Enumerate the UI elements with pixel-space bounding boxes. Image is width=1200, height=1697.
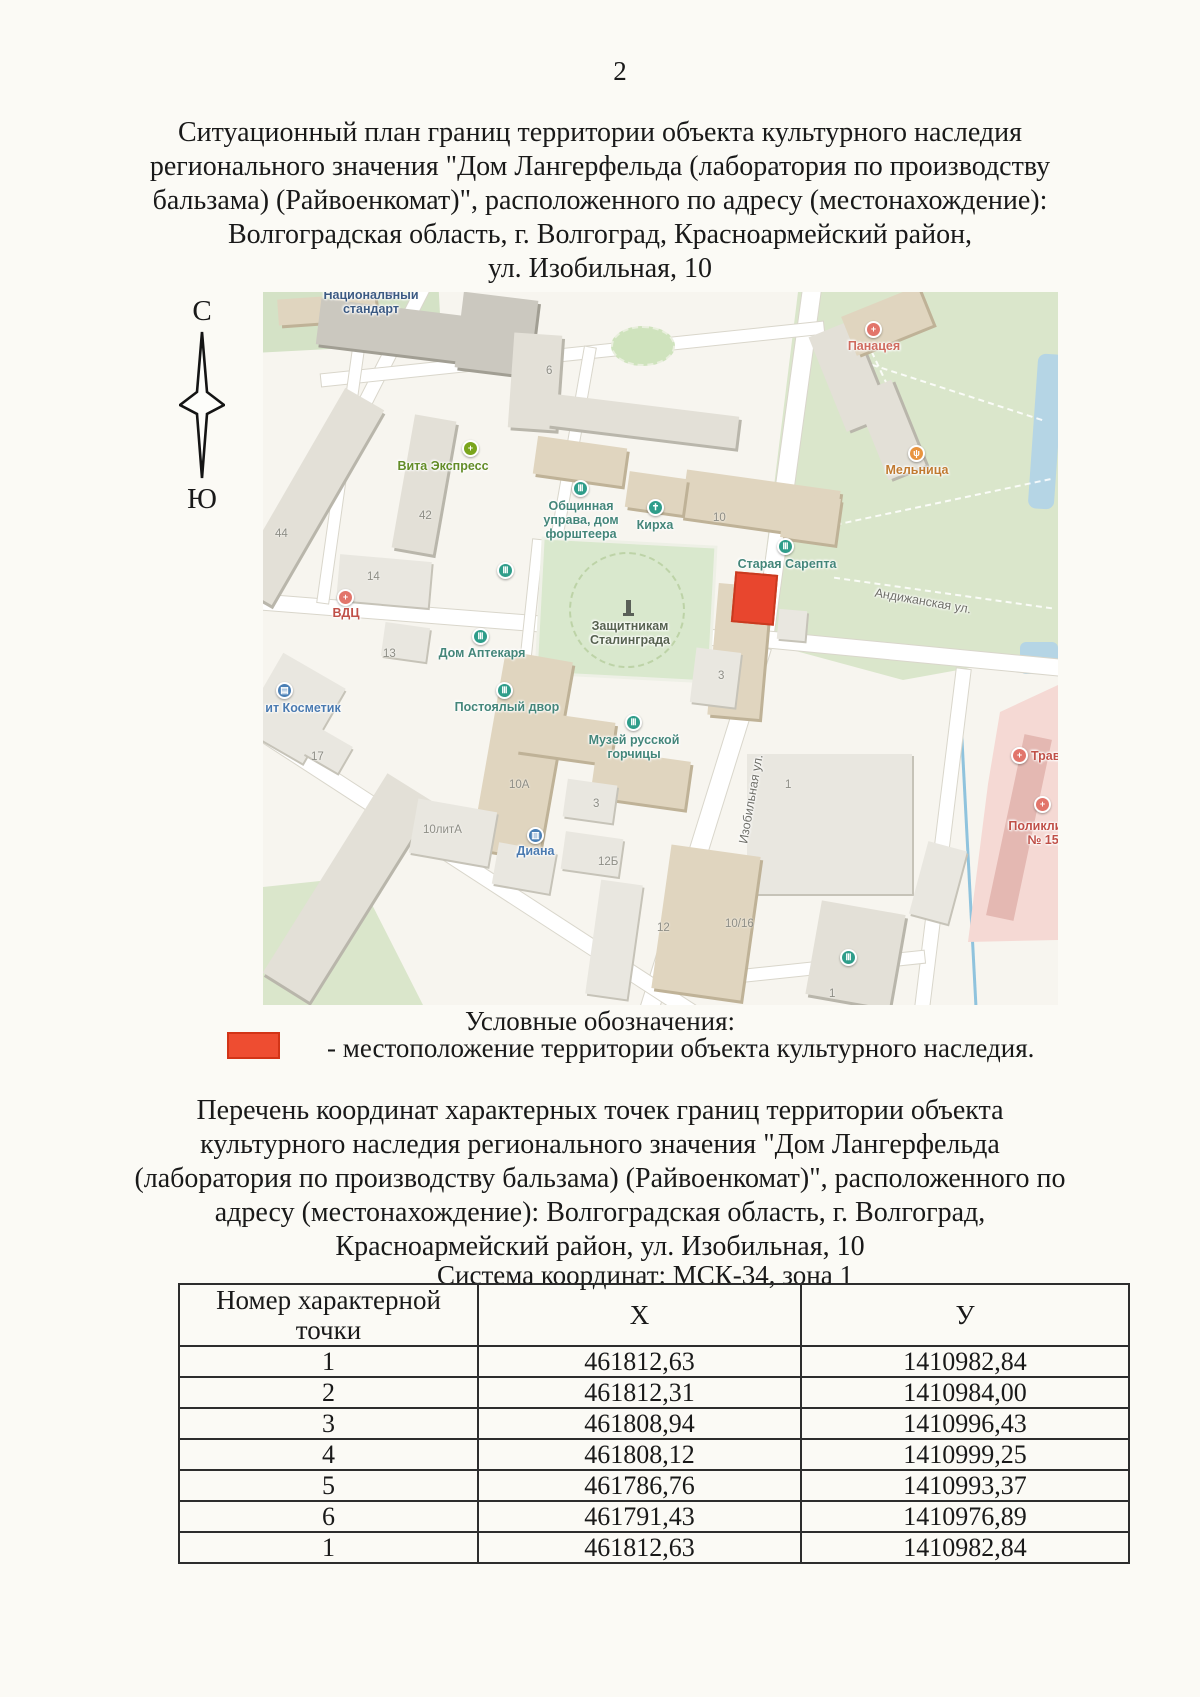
compass-star-icon: [179, 330, 225, 480]
table-row: 6 461791,43 1410976,89: [179, 1501, 1129, 1532]
heritage-site-marker: [731, 571, 778, 626]
map-label-national-standard: Национальный стандарт: [311, 292, 431, 316]
monument-icon: [626, 600, 631, 614]
building-3: [690, 647, 741, 707]
cell-y: 1410993,37: [801, 1470, 1129, 1501]
table-header-row: Номер характерной точки X У: [179, 1284, 1129, 1346]
cell-y: 1410976,89: [801, 1501, 1129, 1532]
map-label-panaceya: Панацея: [836, 339, 912, 353]
cell-x: 461808,12: [478, 1439, 801, 1470]
legend-marker-swatch: [227, 1032, 280, 1059]
round-grove: [611, 326, 675, 366]
col-header-point: Номер характерной точки: [179, 1284, 478, 1346]
bld-num-6: 6: [546, 365, 552, 377]
table-row: 1 461812,63 1410982,84: [179, 1532, 1129, 1563]
bld-num-1a: 1: [785, 779, 791, 791]
map-label-aptekar: Дом Аптекаря: [426, 646, 538, 660]
coordinates-table: Номер характерной точки X У 1 461812,63 …: [178, 1283, 1130, 1564]
cell-x: 461808,94: [478, 1408, 801, 1439]
cell-point: 1: [179, 1532, 478, 1563]
bld-num-1016: 10/16: [725, 918, 754, 930]
map-label-kosmetik: ит Косметик: [263, 701, 349, 715]
museum-icon-postoyaly: Ⅲ: [496, 682, 513, 699]
building: [777, 609, 808, 641]
bld-num-10: 10: [713, 512, 726, 524]
map-label-kirha: Кирха: [625, 518, 685, 532]
table-row: 1 461812,63 1410982,84: [179, 1346, 1129, 1377]
medical-icon-clinic: +: [1034, 796, 1051, 813]
building-12b: [561, 831, 624, 877]
map-label-postoyaly: Постоялый двор: [445, 700, 569, 714]
monument-base-icon: [623, 613, 634, 616]
table-row: 4 461808,12 1410999,25: [179, 1439, 1129, 1470]
cell-point: 1: [179, 1346, 478, 1377]
medical-icon-panaceya: +: [865, 321, 882, 338]
map-label-travm: Трав: [1031, 749, 1058, 763]
bld-num-10a: 10А: [509, 779, 529, 791]
shop-icon-kosmetik: ▤: [276, 682, 293, 699]
cell-y: 1410982,84: [801, 1532, 1129, 1563]
map-label-obshina: Общинная управа, дом форштеера: [525, 499, 637, 541]
cell-y: 1410999,25: [801, 1439, 1129, 1470]
cell-y: 1410996,43: [801, 1408, 1129, 1439]
map-label-melnitsa: Мельница: [876, 463, 958, 477]
food-icon-melnitsa: ψ: [908, 445, 925, 462]
building-sarepta: [780, 491, 841, 544]
col-header-x: X: [478, 1284, 801, 1346]
pharmacy-icon: +: [462, 440, 479, 457]
map-label-zashitnikam: Защитникам Сталинграда: [575, 619, 685, 647]
cell-point: 4: [179, 1439, 478, 1470]
bld-num-42: 42: [419, 510, 432, 522]
shop-icon-diana: ▥: [527, 827, 544, 844]
table-row: 3 461808,94 1410996,43: [179, 1408, 1129, 1439]
cell-point: 3: [179, 1408, 478, 1439]
map-label-vdc: ВДЦ: [321, 606, 371, 620]
building-10a: [563, 779, 618, 824]
cell-point: 5: [179, 1470, 478, 1501]
bld-num-44: 44: [275, 528, 288, 540]
situational-plan-heading: Ситуационный план границ территории объе…: [140, 116, 1060, 286]
cell-x: 461812,63: [478, 1532, 801, 1563]
cell-x: 461812,63: [478, 1346, 801, 1377]
church-icon-kirha: ✝: [647, 499, 664, 516]
coordinates-heading: Перечень координат характерных точек гра…: [130, 1094, 1070, 1264]
bld-num-1b: 1: [829, 988, 835, 1000]
map-label-diana: Диана: [508, 844, 563, 858]
compass: С Ю: [170, 296, 234, 514]
cell-y: 1410984,00: [801, 1377, 1129, 1408]
situational-map: Ⅲ + Ⅲ ✝ Ⅲ Ⅲ Ⅲ Ⅲ Ⅲ Ⅲ + ▤ ▥ + ψ + + Национ…: [263, 292, 1058, 1005]
cell-point: 6: [179, 1501, 478, 1532]
table-row: 2 461812,31 1410984,00: [179, 1377, 1129, 1408]
legend-item-text: - местоположение территории объекта куль…: [327, 1033, 1034, 1064]
bld-num-10lita: 10литА: [423, 824, 462, 836]
building: [909, 841, 967, 924]
bld-num-12b: 12Б: [598, 856, 618, 868]
bld-num-13: 13: [383, 648, 396, 660]
table-row: 5 461786,76 1410993,37: [179, 1470, 1129, 1501]
museum-icon-aptekar: Ⅲ: [472, 628, 489, 645]
museum-icon-obshina: Ⅲ: [572, 480, 589, 497]
building-obshina: [533, 436, 627, 486]
medical-icon-vdc: +: [337, 589, 354, 606]
compass-north-label: С: [170, 296, 234, 326]
cell-point: 2: [179, 1377, 478, 1408]
bld-num-3b: 3: [593, 798, 599, 810]
medical-icon-travm: +: [1011, 747, 1028, 764]
museum-icon: Ⅲ: [497, 562, 514, 579]
map-label-gorchitsa: Музей русской горчицы: [576, 733, 692, 761]
museum-icon-south: Ⅲ: [840, 949, 857, 966]
map-label-vita: Вита Экспресс: [393, 459, 493, 473]
museum-icon-sarepta: Ⅲ: [777, 538, 794, 555]
bld-num-3a: 3: [718, 670, 724, 682]
col-header-y: У: [801, 1284, 1129, 1346]
document-page: 2 Ситуационный план границ территории об…: [0, 0, 1200, 1697]
building-1-large: [747, 754, 912, 894]
page-number: 2: [0, 56, 1200, 87]
map-label-poliklinika: Поликлини № 15: [1008, 819, 1058, 847]
cell-y: 1410982,84: [801, 1346, 1129, 1377]
bld-num-17: 17: [311, 751, 324, 763]
building-42: [392, 414, 457, 554]
bld-num-14: 14: [367, 571, 380, 583]
compass-south-label: Ю: [170, 484, 234, 514]
map-label-sarepta: Старая Сарепта: [731, 557, 843, 571]
cell-x: 461791,43: [478, 1501, 801, 1532]
museum-icon-gorchitsa: Ⅲ: [625, 714, 642, 731]
bld-num-12: 12: [657, 922, 670, 934]
cell-x: 461812,31: [478, 1377, 801, 1408]
cell-x: 461786,76: [478, 1470, 801, 1501]
